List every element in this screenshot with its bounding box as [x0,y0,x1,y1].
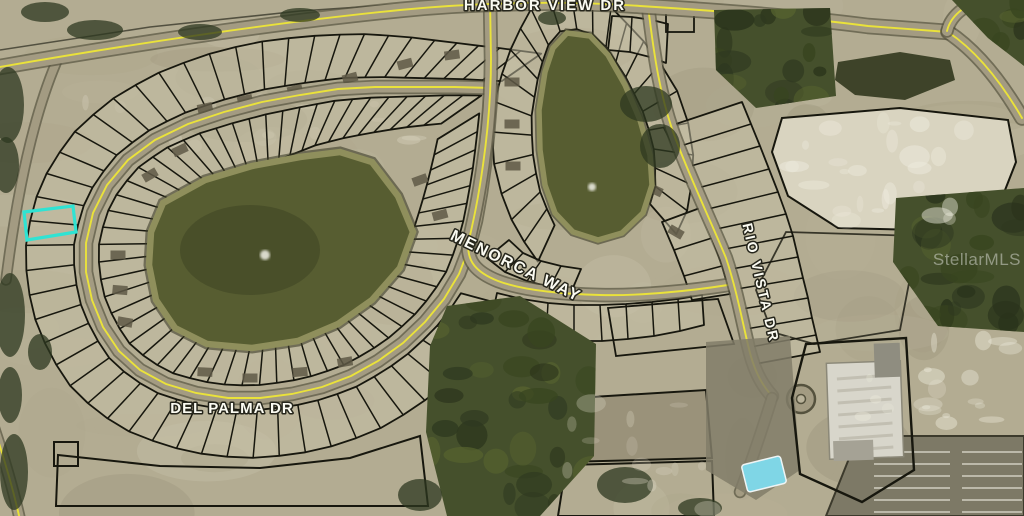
aerial-map-image[interactable]: HARBOR VIEW DR MENORCA WAY RIO VISTA DR … [0,0,1024,516]
parcel-map[interactable]: HARBOR VIEW DR MENORCA WAY RIO VISTA DR … [0,0,1024,516]
street-label-harbor-view-dr: HARBOR VIEW DR [464,0,626,14]
street-label-del-palma-dr: DEL PALMA DR [170,400,293,417]
watermark-stellar-mls: StellarMLS [933,250,1021,269]
